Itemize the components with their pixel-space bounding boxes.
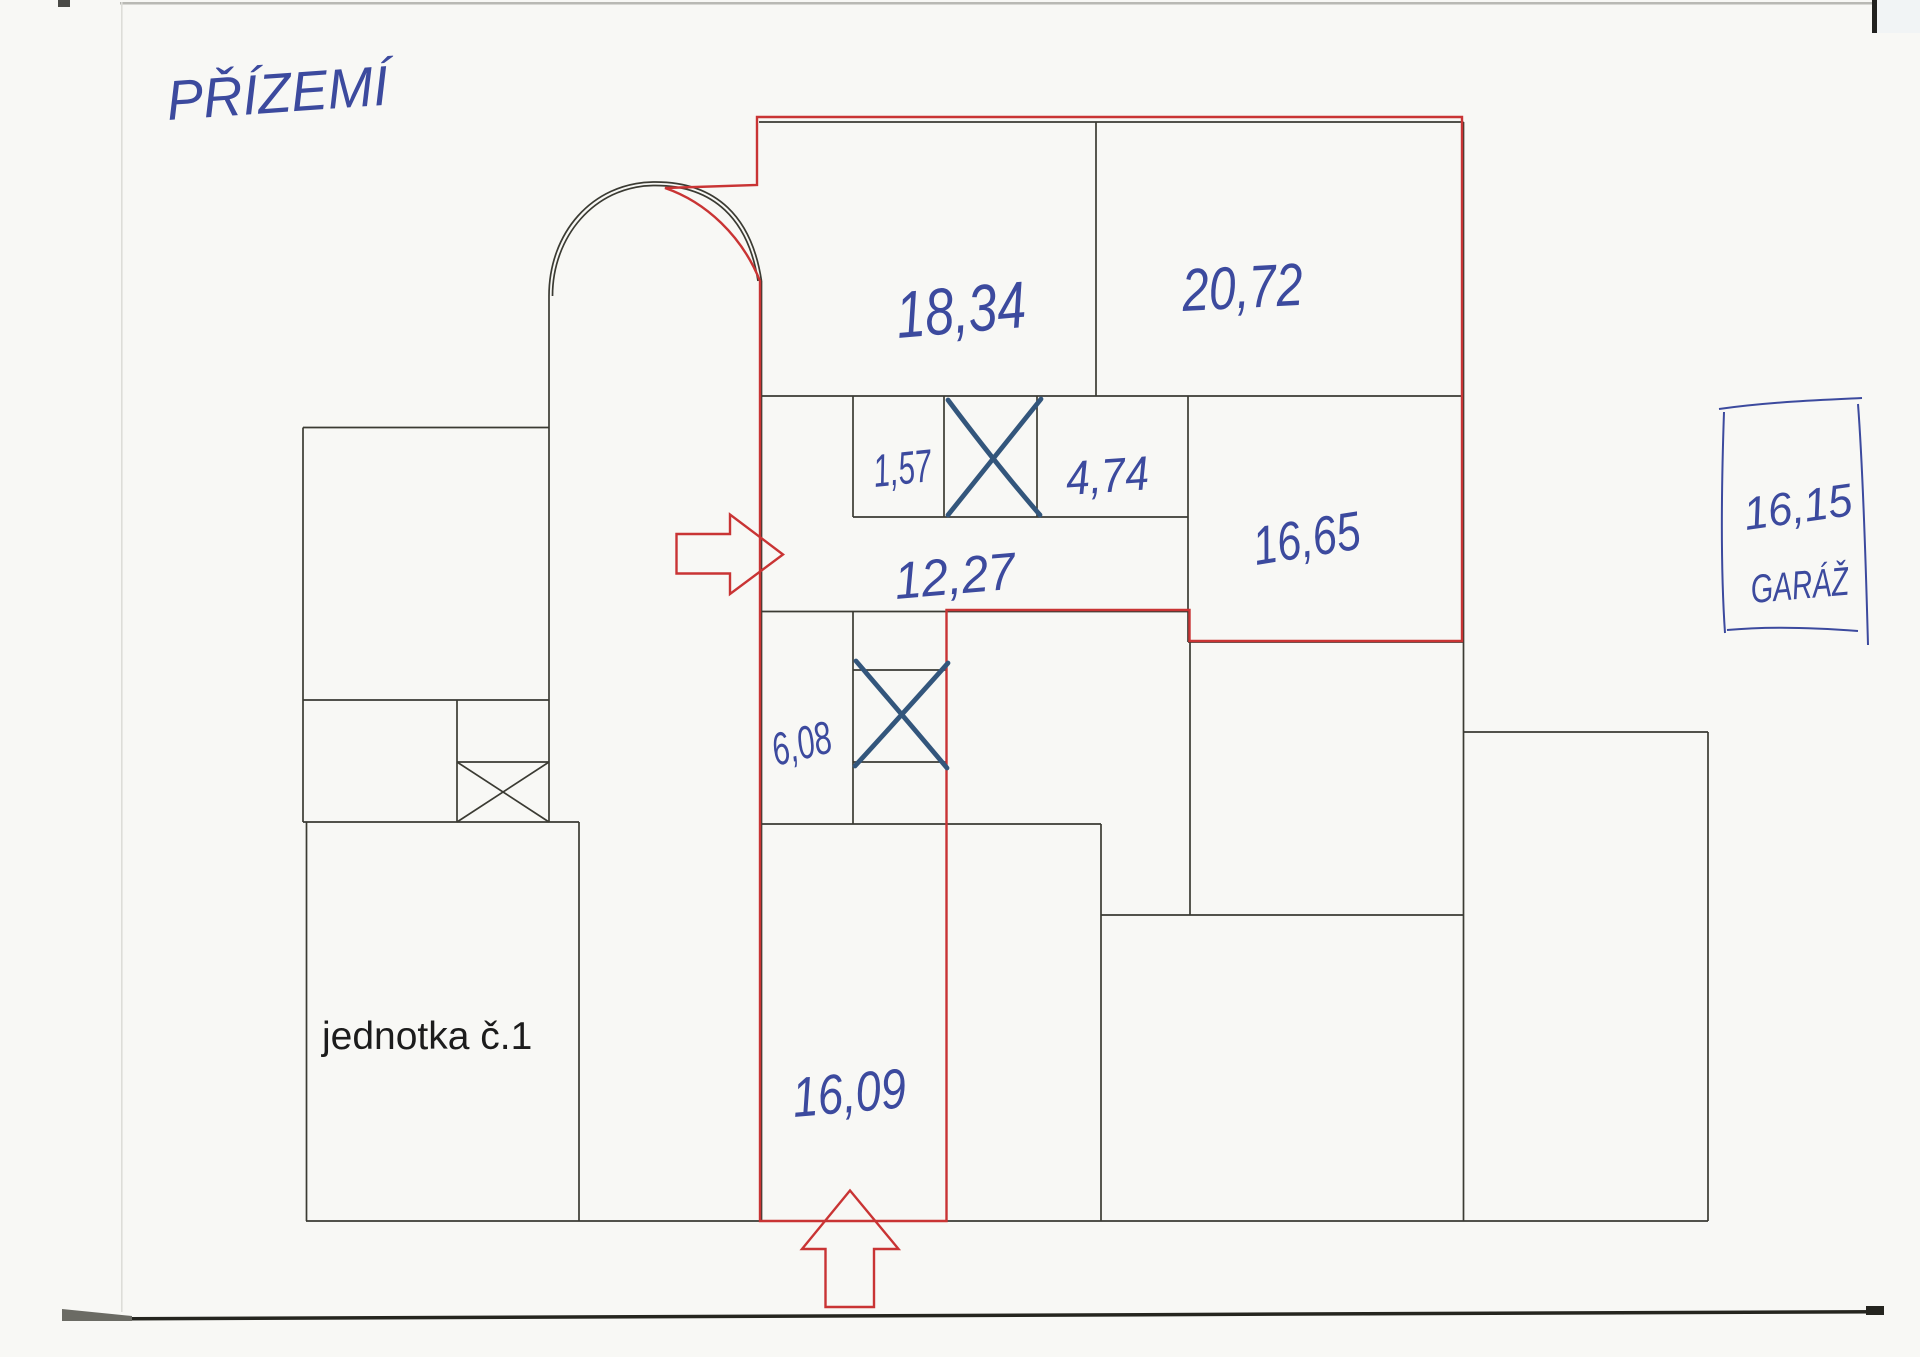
svg-text:GARÁŽ: GARÁŽ — [1749, 558, 1852, 611]
svg-text:20,72: 20,72 — [1179, 251, 1304, 324]
svg-text:16,09: 16,09 — [790, 1056, 909, 1129]
svg-text:jednotka č.1: jednotka č.1 — [321, 1015, 532, 1058]
svg-text:18,34: 18,34 — [893, 267, 1029, 352]
svg-text:12,27: 12,27 — [892, 542, 1020, 610]
svg-text:1,57: 1,57 — [871, 439, 935, 497]
svg-text:4,74: 4,74 — [1064, 447, 1150, 506]
